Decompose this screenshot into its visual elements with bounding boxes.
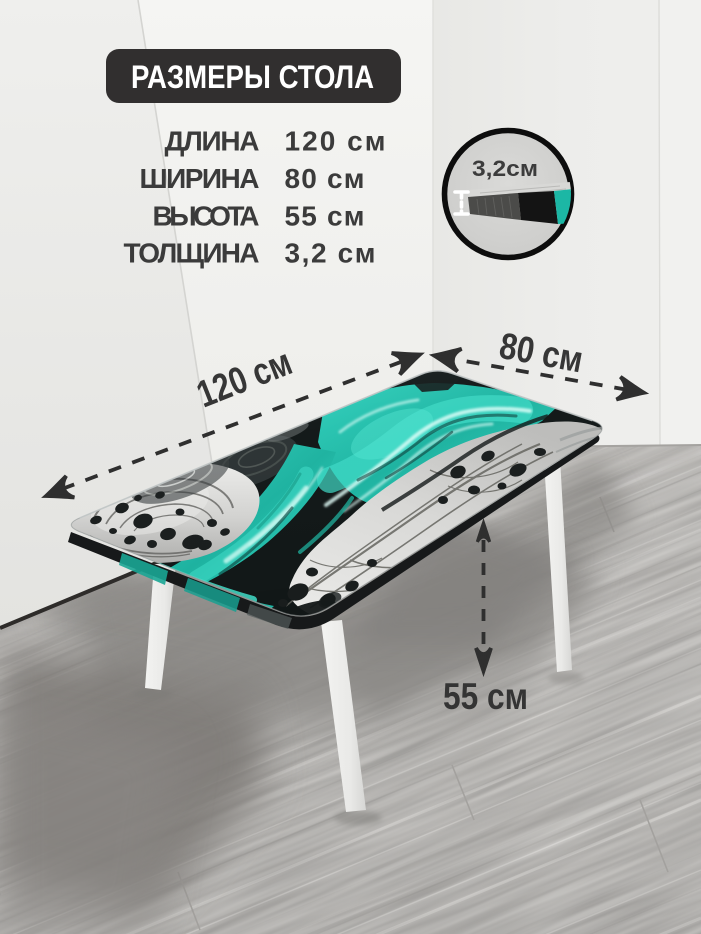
svg-text:ВЫСОТА: ВЫСОТА <box>153 201 260 232</box>
svg-text:РАЗМЕРЫ СТОЛА: РАЗМЕРЫ СТОЛА <box>131 59 374 95</box>
svg-text:3,2 см: 3,2 см <box>285 238 376 269</box>
svg-text:55 см: 55 см <box>285 201 365 232</box>
svg-text:120 см: 120 см <box>285 126 386 157</box>
svg-text:ШИРИНА: ШИРИНА <box>140 163 260 194</box>
svg-text:3,2см: 3,2см <box>472 156 538 181</box>
svg-text:80 см: 80 см <box>285 163 365 194</box>
svg-text:ДЛИНА: ДЛИНА <box>165 126 260 157</box>
svg-text:55 см: 55 см <box>443 676 528 717</box>
svg-text:ТОЛЩИНА: ТОЛЩИНА <box>124 238 260 269</box>
